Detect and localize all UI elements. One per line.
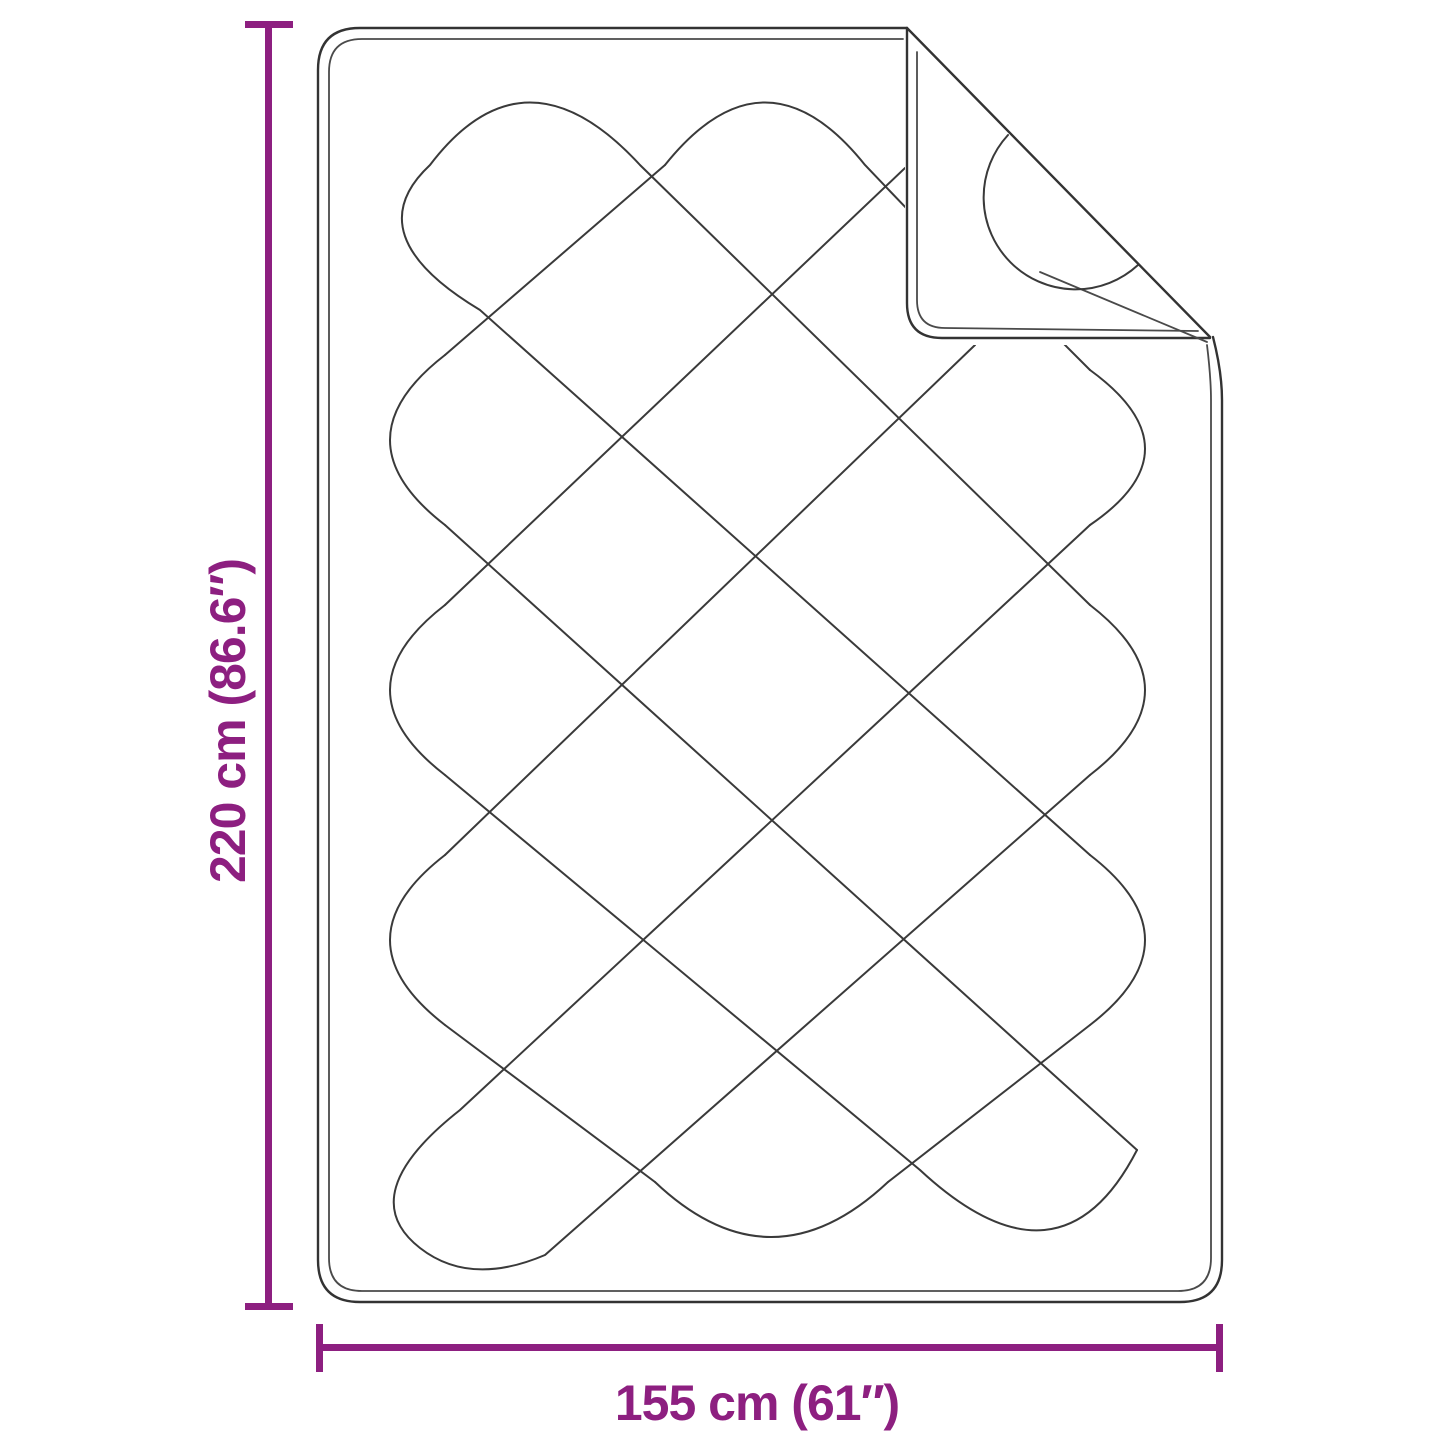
- diagram-canvas: 220 cm (86.6″) 155 cm (61″): [0, 0, 1445, 1445]
- vertical-dimension-cap-bottom: [245, 1303, 293, 1310]
- height-dimension-label: 220 cm (86.6″): [199, 521, 257, 921]
- folded-corner-flap: [907, 28, 1211, 342]
- vertical-dimension-line: [265, 22, 272, 1310]
- width-dimension-label: 155 cm (61″): [557, 1374, 957, 1432]
- vertical-dimension-cap-top: [245, 21, 293, 28]
- horizontal-dimension-cap-right: [1216, 1324, 1223, 1372]
- horizontal-dimension-line: [318, 1344, 1222, 1351]
- horizontal-dimension-cap-left: [316, 1324, 323, 1372]
